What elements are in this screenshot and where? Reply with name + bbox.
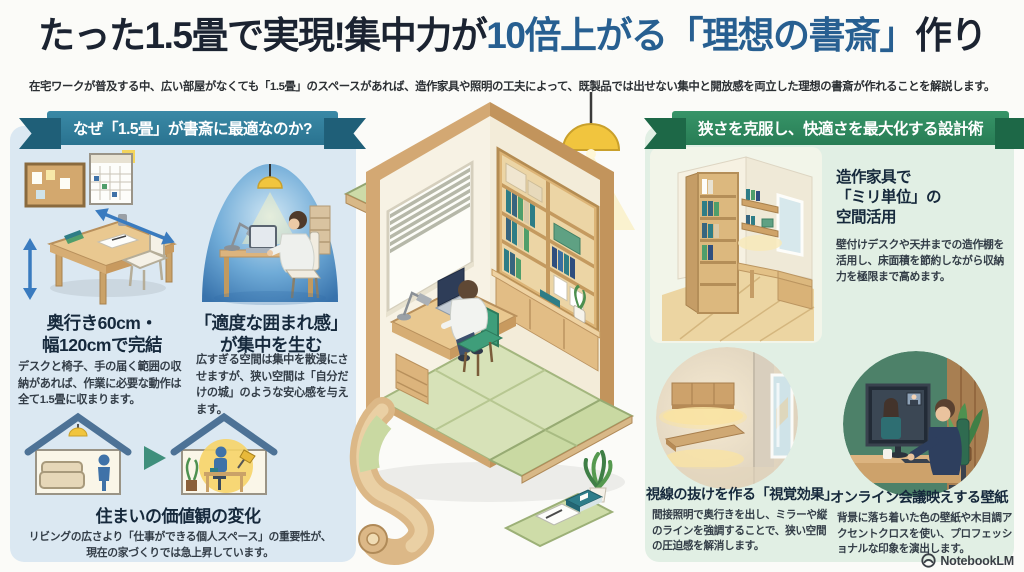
housing-values-illustration	[24, 410, 332, 504]
notebooklm-icon	[921, 553, 936, 568]
window-icon	[778, 195, 802, 255]
built-in-shelf-room-illustration	[650, 147, 822, 343]
left-block3-heading: 住まいの価値観の変化	[12, 506, 344, 528]
indirect-lighting-mirror-illustration	[656, 347, 798, 489]
title-part-1: たった1.5畳で実現!集中力が	[38, 15, 486, 56]
right-block2-heading: 視線の抜けを作る「視覚効果」	[646, 486, 846, 504]
right-block2-body: 間接照明で奥行きを出し、ミラーや縦のラインを強調することで、狭い空間の圧迫感を解…	[652, 508, 832, 555]
left-block1-body: デスクと椅子、手の届く範囲の収納があれば、作業に必要な動作は全て1.5畳に収まり…	[18, 359, 190, 409]
left-block2-body: 広すぎる空間は集中を散漫にさせますが、狭い空間は「自分だけの城」のような安心感を…	[196, 352, 354, 418]
right-block3-body: 背景に落ち着いた色の壁紙や木目調アクセントクロスを使い、プロフェッショナルな印象…	[837, 511, 1015, 558]
study-room-cutaway-illustration	[340, 92, 660, 572]
left-block1-heading: 奥行き60cm・ 幅120cmで完結	[12, 312, 192, 357]
video-call-illustration	[843, 351, 989, 497]
mirror-icon	[772, 375, 792, 457]
title-part-2: 10倍上がる	[486, 15, 666, 56]
page-title: たった1.5畳で実現!集中力が10倍上がる「理想の書斎」作り	[0, 16, 1024, 57]
title-part-4: 作り	[915, 15, 986, 56]
brand-label: NotebookLM	[940, 554, 1014, 568]
arrow-right-icon	[144, 446, 166, 470]
calendar-icon	[90, 150, 135, 204]
notebooklm-branding: NotebookLM	[921, 553, 1014, 568]
left-block2-heading: 「適度な囲まれ感」 が集中を生む	[190, 312, 352, 357]
left-block3-body: リビングの広さより「仕事ができる個人スペース」の重要性が、現在の家づくりでは急上…	[28, 530, 332, 562]
right-section-banner: 狭さを克服し、快適さを最大化する設計術	[672, 111, 1009, 145]
right-block1-body: 壁付けデスクや天井までの造作棚を活用し、床面積を節約しながら収納力を極限まで高め…	[836, 238, 1008, 286]
right-block3-heading: オンライン会議映えする壁紙	[830, 489, 1020, 507]
left-section-banner: なぜ「1.5畳」が書斎に最適なのか?	[47, 111, 338, 145]
depth-arrow-icon	[23, 238, 37, 300]
tall-bookshelf-icon	[686, 173, 738, 313]
house-after-illustration	[174, 417, 274, 494]
desk-dimensions-illustration	[16, 148, 184, 306]
corkboard-icon	[26, 164, 84, 206]
right-block1-heading: 造作家具で 「ミリ単位」の 空間活用	[836, 168, 1012, 227]
house-before-illustration	[28, 417, 128, 494]
focus-dome-illustration	[194, 148, 346, 306]
infographic-page: たった1.5畳で実現!集中力が10倍上がる「理想の書斎」作り 在宅ワークが普及す…	[0, 0, 1024, 572]
title-part-3: 「理想の書斎」	[666, 15, 915, 56]
laptop-icon	[250, 226, 276, 248]
